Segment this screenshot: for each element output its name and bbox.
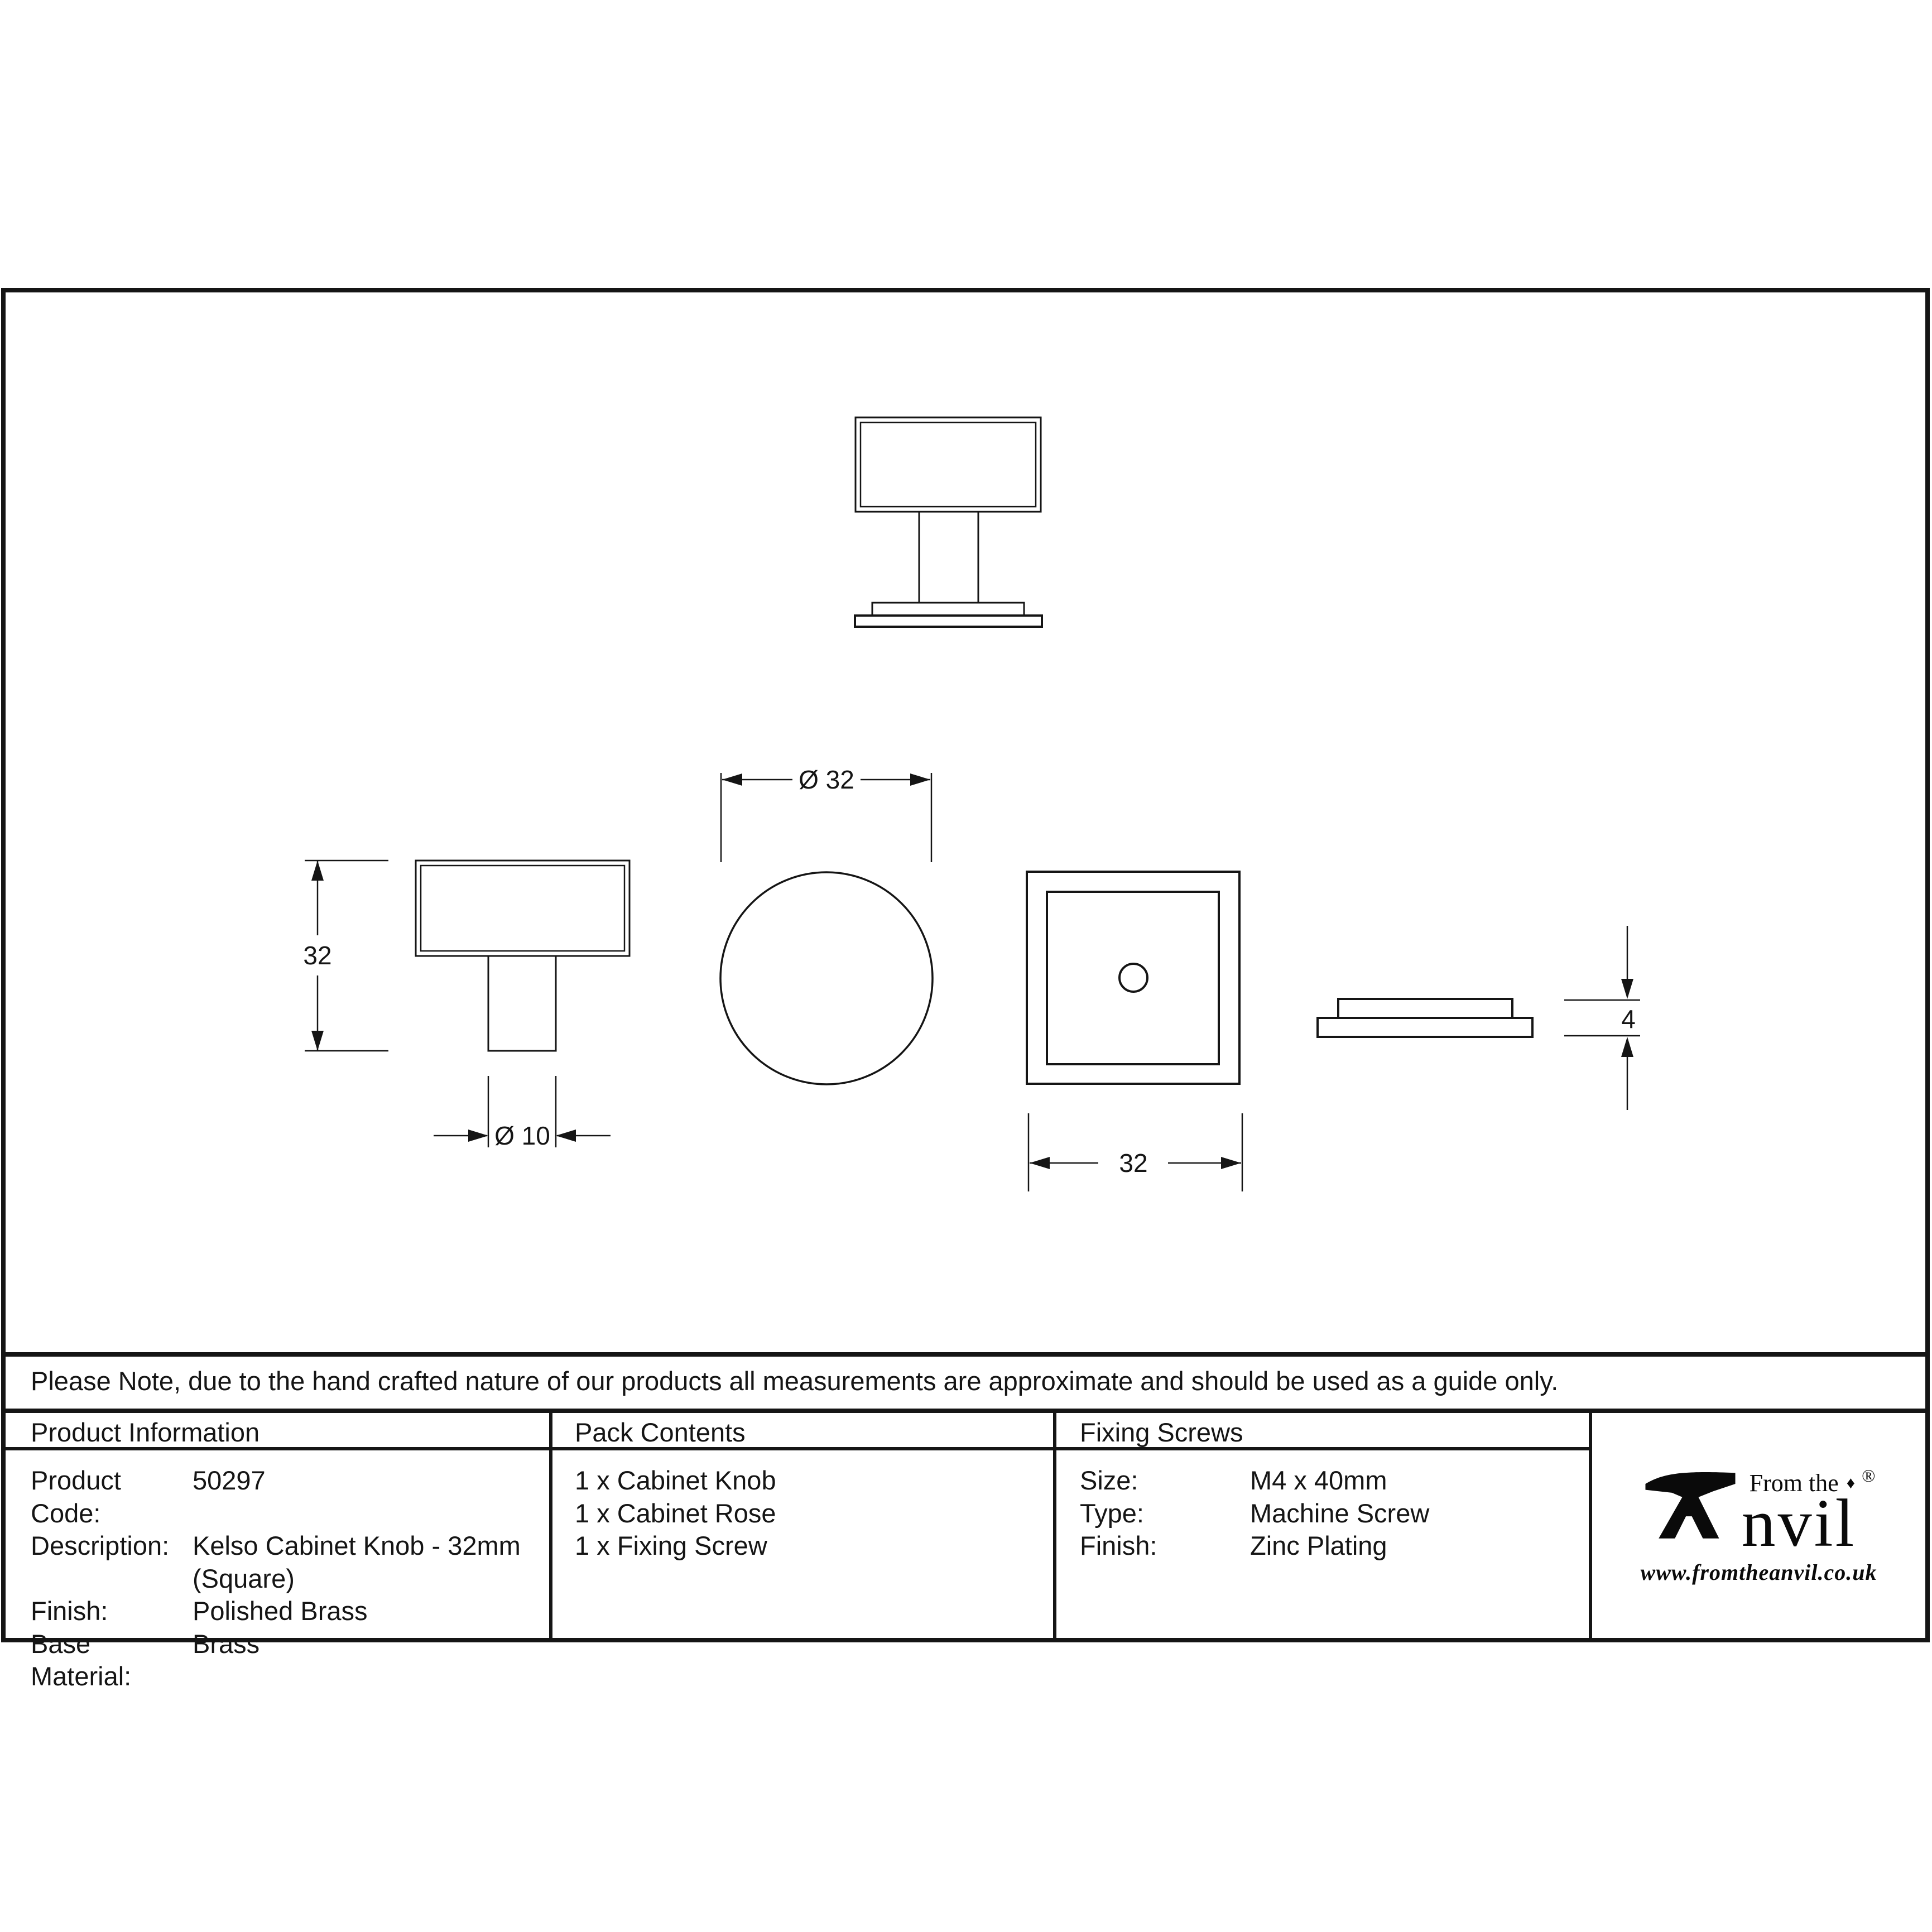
note-row-divider (1, 1352, 1930, 1357)
pack-contents-cell: 1 x Cabinet Knob 1 x Cabinet Rose 1 x Fi… (575, 1464, 1021, 1563)
fixing-screws-cell: Size: M4 x 40mm Type: Machine Screw Fini… (1080, 1464, 1560, 1563)
field-label: Base Material: (31, 1628, 193, 1693)
note-text: Please Note, due to the hand crafted nat… (31, 1365, 1872, 1397)
logo-wordmark: From the ♦ ® nvil (1742, 1468, 1876, 1550)
field-label: Size: (1080, 1464, 1250, 1497)
table-row: Type: Machine Screw (1080, 1497, 1560, 1530)
field-value: (Square) (193, 1563, 295, 1595)
field-value: Brass (193, 1628, 259, 1693)
field-value: Machine Screw (1250, 1497, 1429, 1530)
list-item: 1 x Fixing Screw (575, 1530, 1021, 1563)
table-divider-2 (1053, 1413, 1056, 1638)
field-label: Description: (31, 1530, 193, 1563)
list-item: 1 x Cabinet Rose (575, 1497, 1021, 1530)
table-divider-1 (549, 1413, 552, 1638)
table-row: Size: M4 x 40mm (1080, 1464, 1560, 1497)
spec-sheet-page: 32 Ø 10 Ø 32 32 (0, 0, 1932, 1932)
logo-url: www.fromtheanvil.co.uk (1641, 1559, 1877, 1585)
table-row: (Square) (31, 1563, 533, 1595)
table-row: Description: Kelso Cabinet Knob - 32mm (31, 1530, 533, 1563)
table-row: Base Material: Brass (31, 1628, 533, 1693)
field-label: Finish: (31, 1595, 193, 1628)
logo-name: nvil (1742, 1497, 1857, 1550)
field-value: Polished Brass (193, 1595, 368, 1628)
header-product-information: Product Information (31, 1416, 259, 1449)
field-label: Type: (1080, 1497, 1250, 1530)
table-row: Finish: Zinc Plating (1080, 1530, 1560, 1563)
product-information-cell: Product Code: 50297 Description: Kelso C… (31, 1464, 533, 1693)
brand-logo: From the ♦ ® nvil www.fromtheanvil.co.uk (1592, 1415, 1925, 1638)
registered-mark: ® (1862, 1467, 1875, 1484)
field-value: Zinc Plating (1250, 1530, 1387, 1563)
table-top-line (1, 1409, 1930, 1413)
anvil-icon (1642, 1468, 1738, 1541)
field-label: Finish: (1080, 1530, 1250, 1563)
logo-lockup: From the ♦ ® nvil (1642, 1468, 1876, 1550)
field-value: 50297 (193, 1464, 266, 1530)
field-value: Kelso Cabinet Knob - 32mm (193, 1530, 521, 1563)
header-pack-contents: Pack Contents (575, 1416, 746, 1449)
table-row: Finish: Polished Brass (31, 1595, 533, 1628)
field-value: M4 x 40mm (1250, 1464, 1387, 1497)
header-fixing-screws: Fixing Screws (1080, 1416, 1243, 1449)
field-label: Product Code: (31, 1464, 193, 1530)
field-label (31, 1563, 193, 1595)
table-row: Product Code: 50297 (31, 1464, 533, 1530)
list-item: 1 x Cabinet Knob (575, 1464, 1021, 1497)
